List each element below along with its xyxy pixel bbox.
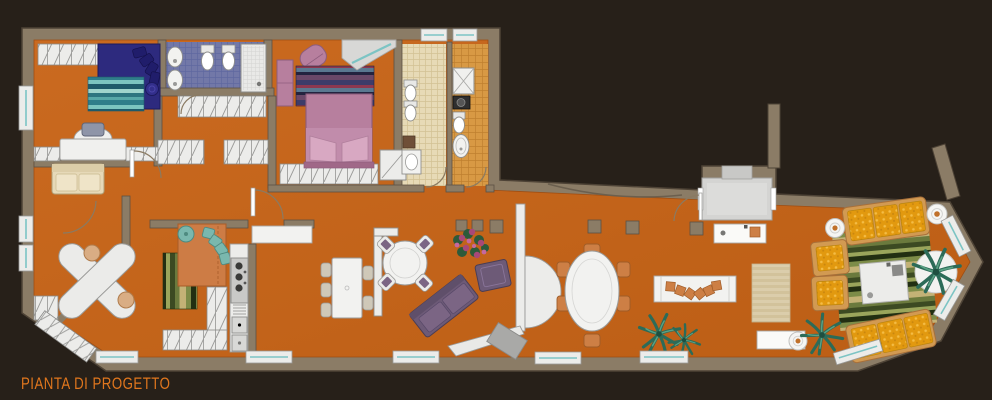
- toilet: [453, 112, 465, 133]
- wall-stub: [768, 104, 780, 168]
- headboard: [304, 162, 374, 168]
- sink: [168, 47, 183, 67]
- double-bed-mauve: [304, 94, 374, 168]
- shower: [241, 44, 266, 92]
- window: [246, 351, 292, 363]
- divider-wall: [516, 204, 525, 331]
- entry-console: [714, 224, 766, 243]
- plan-title: PIANTA DI PROGETTO: [21, 374, 170, 394]
- window: [19, 216, 33, 242]
- desk-cabinet-left: [34, 147, 60, 161]
- washing-machine: [453, 96, 470, 109]
- window: [640, 351, 688, 363]
- window: [535, 352, 581, 364]
- long-bench: [654, 276, 736, 302]
- window: [19, 245, 33, 271]
- sink-drain: [173, 59, 177, 63]
- window: [96, 351, 138, 363]
- teal-striped-rug: [88, 77, 144, 111]
- study-nook: [52, 164, 104, 194]
- desk-chair: [82, 123, 104, 136]
- sink-drain: [238, 341, 241, 344]
- cabinet-L: [207, 287, 227, 331]
- window: [19, 86, 33, 130]
- shower-drain: [257, 82, 261, 86]
- loveseat-cushion: [56, 174, 77, 191]
- armchair: [811, 275, 849, 311]
- shower: [453, 68, 474, 94]
- window: [393, 351, 439, 363]
- sideboard: [252, 226, 312, 243]
- sink-drain: [238, 323, 241, 326]
- sink: [168, 70, 183, 90]
- desk: [60, 139, 126, 160]
- cooktop: [231, 258, 248, 303]
- bidet: [222, 45, 235, 70]
- window: [421, 29, 447, 41]
- floor-plan: [0, 0, 992, 400]
- floor-plan-canvas: [0, 0, 992, 400]
- bedside-stool: [146, 83, 159, 96]
- stool: [118, 292, 134, 308]
- cabinet-row: [163, 330, 227, 350]
- entry-step: [722, 166, 752, 179]
- shelf: [403, 136, 415, 148]
- window: [453, 29, 477, 41]
- sink-drain: [173, 82, 177, 86]
- toilet: [404, 80, 417, 101]
- toilet: [201, 45, 214, 70]
- bidet: [404, 101, 417, 121]
- coffee-table: [859, 260, 908, 304]
- washbasin: [402, 150, 421, 174]
- round-dining-table: [376, 234, 435, 293]
- stool: [84, 245, 100, 261]
- loveseat-cushion: [79, 174, 100, 191]
- oval-basin: [453, 135, 469, 158]
- loveseat-back: [52, 164, 104, 172]
- side-table: [826, 219, 845, 238]
- beige-rug: [752, 264, 790, 322]
- armchair: [810, 239, 849, 277]
